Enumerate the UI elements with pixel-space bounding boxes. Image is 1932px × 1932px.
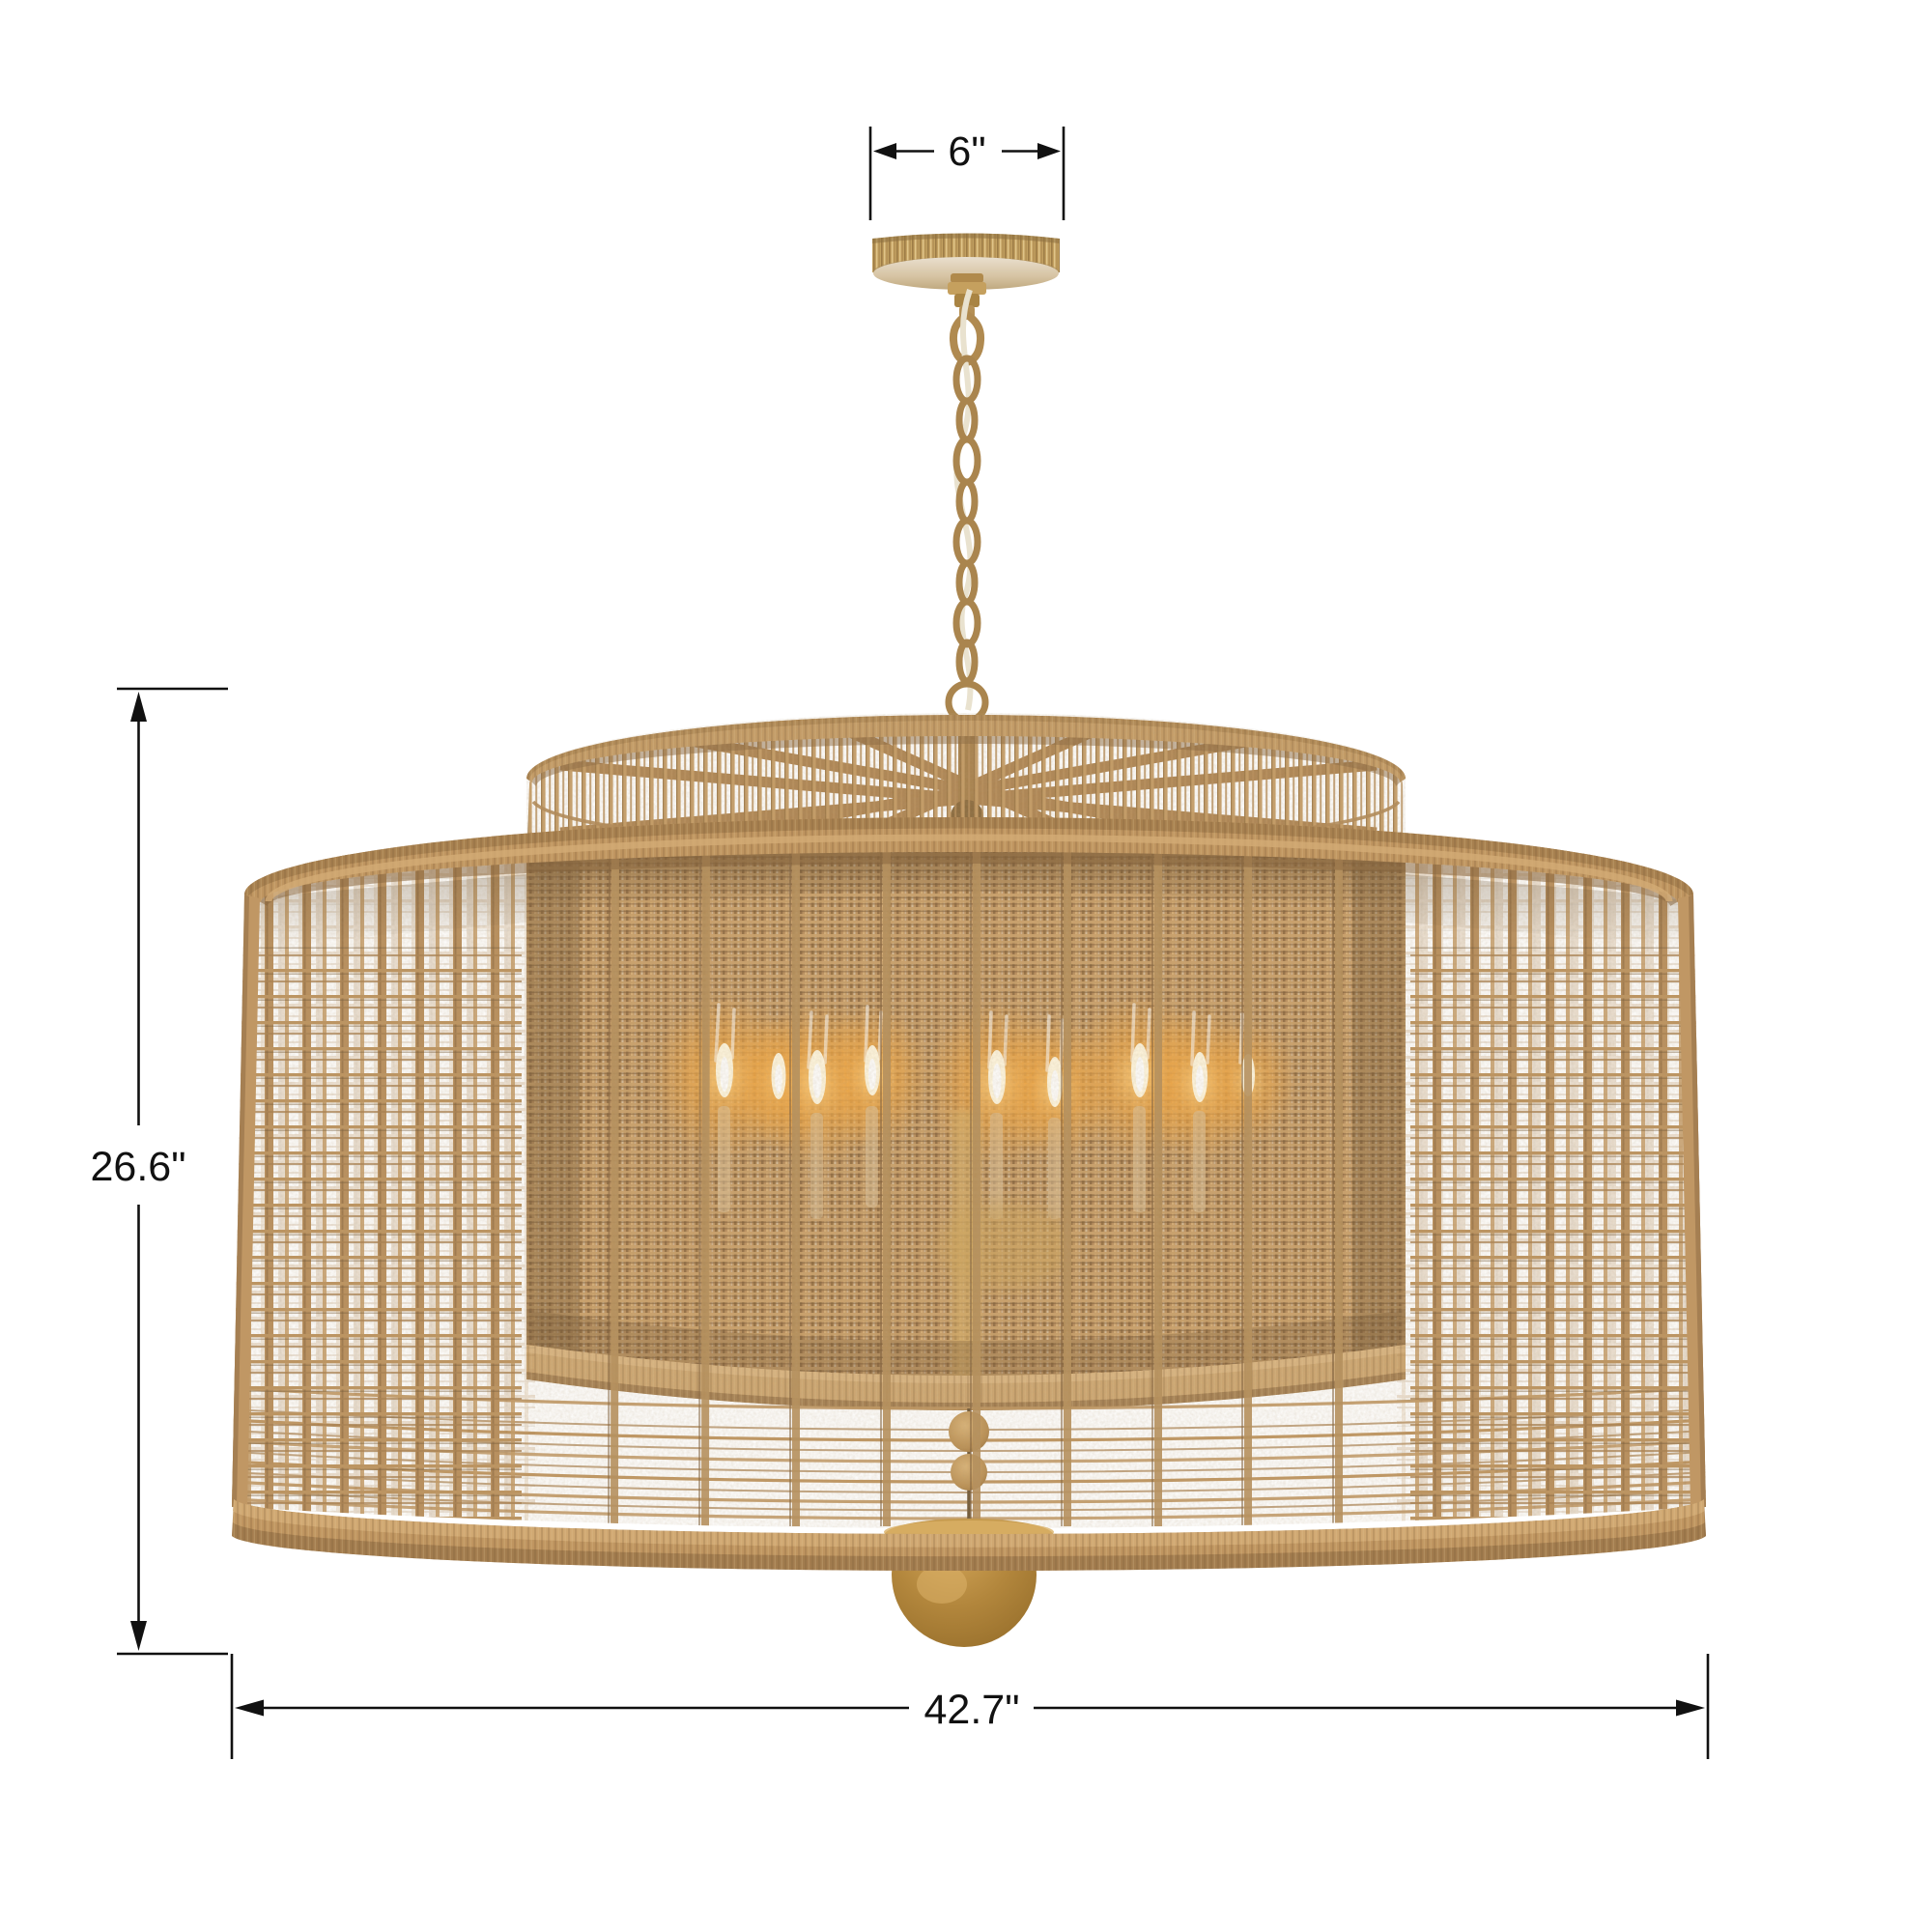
svg-text:42.7": 42.7" — [924, 1687, 1020, 1733]
svg-text:26.6": 26.6" — [91, 1144, 186, 1190]
svg-text:6": 6" — [948, 128, 985, 175]
